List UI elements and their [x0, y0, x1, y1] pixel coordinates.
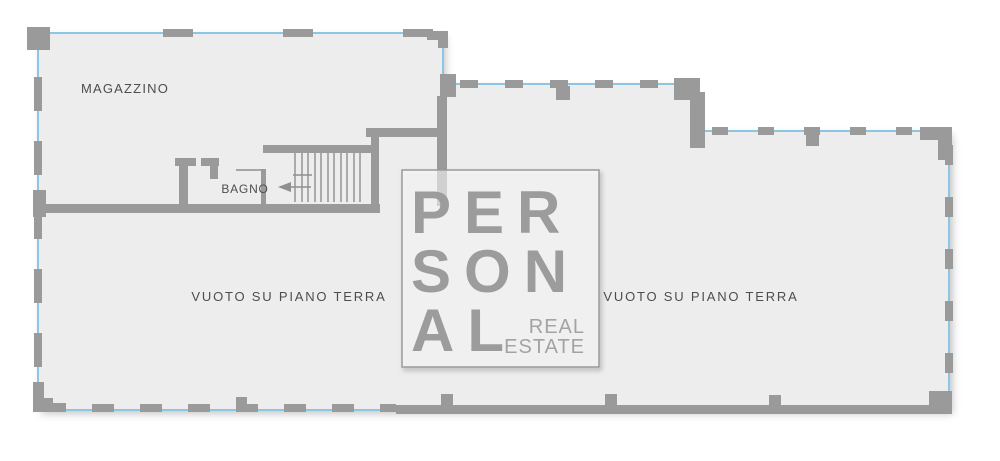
- logo-text-line2: SON: [411, 238, 580, 305]
- pillar: [556, 86, 570, 100]
- pillar: [441, 394, 453, 406]
- wall-bottom-solid: [396, 405, 952, 414]
- wall-stair-top: [263, 145, 371, 153]
- logo-tagline-line2: ESTATE: [504, 336, 585, 358]
- wall-stair-right: [371, 128, 379, 213]
- pillar: [236, 397, 247, 407]
- pillar: [806, 131, 819, 146]
- room-label-bagno: BAGNO: [221, 182, 268, 196]
- floor-plan-drawing: MAGAZZINO BAGNO VUOTO SU PIANO TERRA VUO…: [0, 0, 1000, 461]
- room-label-void-right: VUOTO SU PIANO TERRA: [603, 289, 798, 304]
- wall-bagno-left: [179, 158, 188, 208]
- wall-magazzino-bottom: [33, 204, 380, 213]
- room-label-magazzino: MAGAZZINO: [81, 81, 169, 96]
- logo-tagline-line1: REAL: [529, 316, 585, 338]
- logo-text-line1: PER: [411, 179, 573, 246]
- pillar: [605, 394, 617, 406]
- floor-plan-page: MAGAZZINO BAGNO VUOTO SU PIANO TERRA VUO…: [0, 0, 1000, 461]
- room-label-void-left: VUOTO SU PIANO TERRA: [191, 289, 386, 304]
- personal-real-estate-logo: PER SON AL REAL ESTATE: [402, 170, 599, 367]
- corner-pillar-top-left: [27, 27, 50, 50]
- logo-text-line3: AL: [411, 297, 517, 364]
- pillar: [769, 395, 781, 406]
